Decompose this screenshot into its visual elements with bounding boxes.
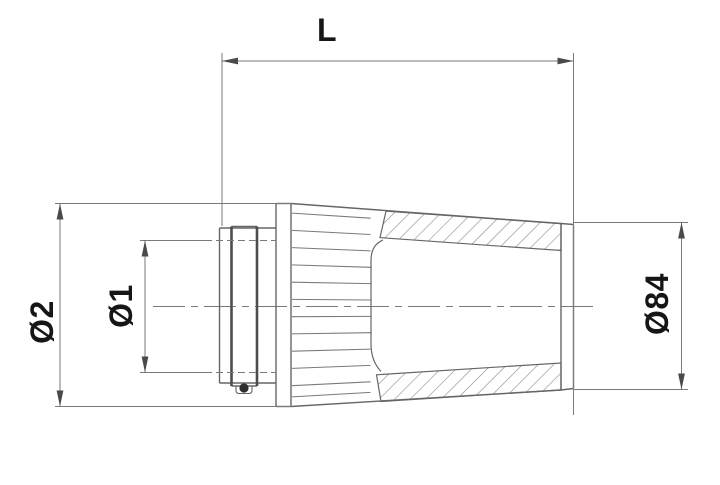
dim-label-inner-diameter: Ø1 (103, 284, 139, 328)
drawing-background (0, 0, 720, 485)
dim-label-length: L (317, 12, 337, 48)
rubber-bead-dot (239, 383, 248, 392)
air-filter-section-drawing: L Ø2 Ø1 Ø84 (0, 0, 720, 485)
technical-drawing-page: L Ø2 Ø1 Ø84 (0, 0, 720, 485)
dim-label-cap-diameter: Ø84 (639, 273, 675, 335)
dim-label-outer-diameter: Ø2 (24, 300, 60, 344)
